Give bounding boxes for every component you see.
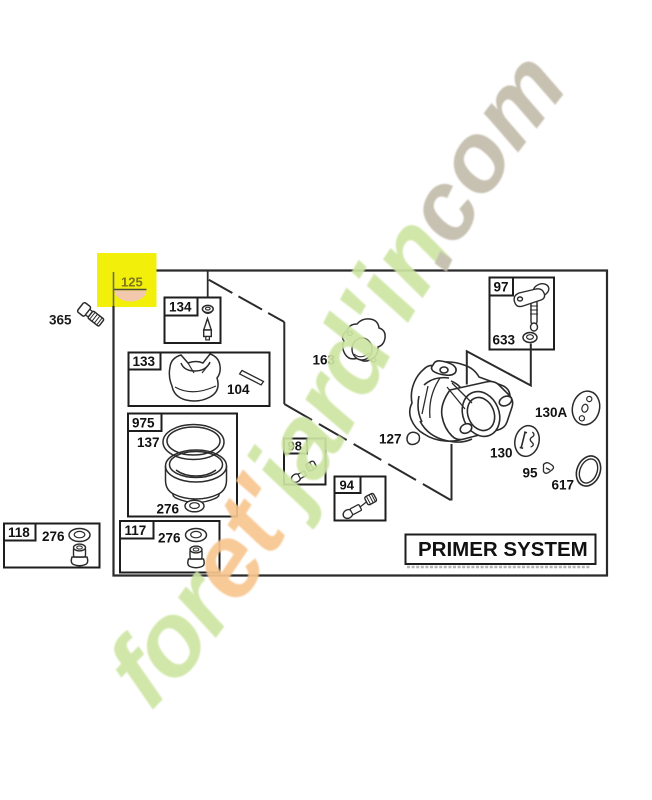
svg-text:.com: .com <box>366 32 587 283</box>
svg-text:127: 127 <box>379 432 402 447</box>
svg-text:365: 365 <box>49 313 72 328</box>
svg-text:118: 118 <box>8 525 30 540</box>
svg-text:133: 133 <box>133 354 156 369</box>
svg-text:130: 130 <box>490 446 513 461</box>
svg-text:104: 104 <box>227 382 250 397</box>
svg-text:137: 137 <box>137 435 160 450</box>
svg-text:PRIMER SYSTEM: PRIMER SYSTEM <box>418 538 588 561</box>
svg-text:975: 975 <box>132 416 155 431</box>
svg-text:134: 134 <box>169 300 192 315</box>
svg-text:125: 125 <box>121 275 143 290</box>
svg-text:633: 633 <box>493 333 516 348</box>
svg-text:276: 276 <box>157 502 180 517</box>
svg-text:130A: 130A <box>535 405 568 420</box>
svg-text:97: 97 <box>494 280 509 295</box>
svg-text:276: 276 <box>42 529 65 544</box>
svg-text:617: 617 <box>552 478 575 493</box>
svg-text:117: 117 <box>125 523 147 538</box>
svg-text:95: 95 <box>523 466 539 481</box>
